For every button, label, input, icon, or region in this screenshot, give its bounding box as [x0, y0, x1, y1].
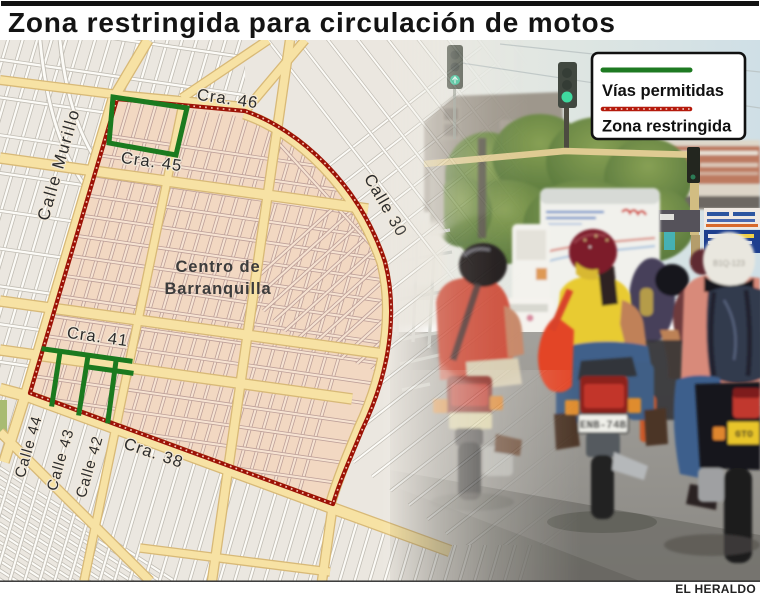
svg-text:EL HERALDO: EL HERALDO [675, 582, 756, 596]
svg-text:Barranquilla: Barranquilla [164, 280, 271, 298]
svg-text:Zona restringida: Zona restringida [602, 118, 732, 136]
svg-text:GTO: GTO [735, 430, 753, 441]
svg-text:B1Q-123: B1Q-123 [713, 259, 746, 268]
svg-text:Vías permitidas: Vías permitidas [602, 82, 724, 100]
svg-text:Zona restringida para circulac: Zona restringida para circulación de mot… [8, 7, 616, 38]
svg-text:Centro de: Centro de [175, 258, 260, 276]
